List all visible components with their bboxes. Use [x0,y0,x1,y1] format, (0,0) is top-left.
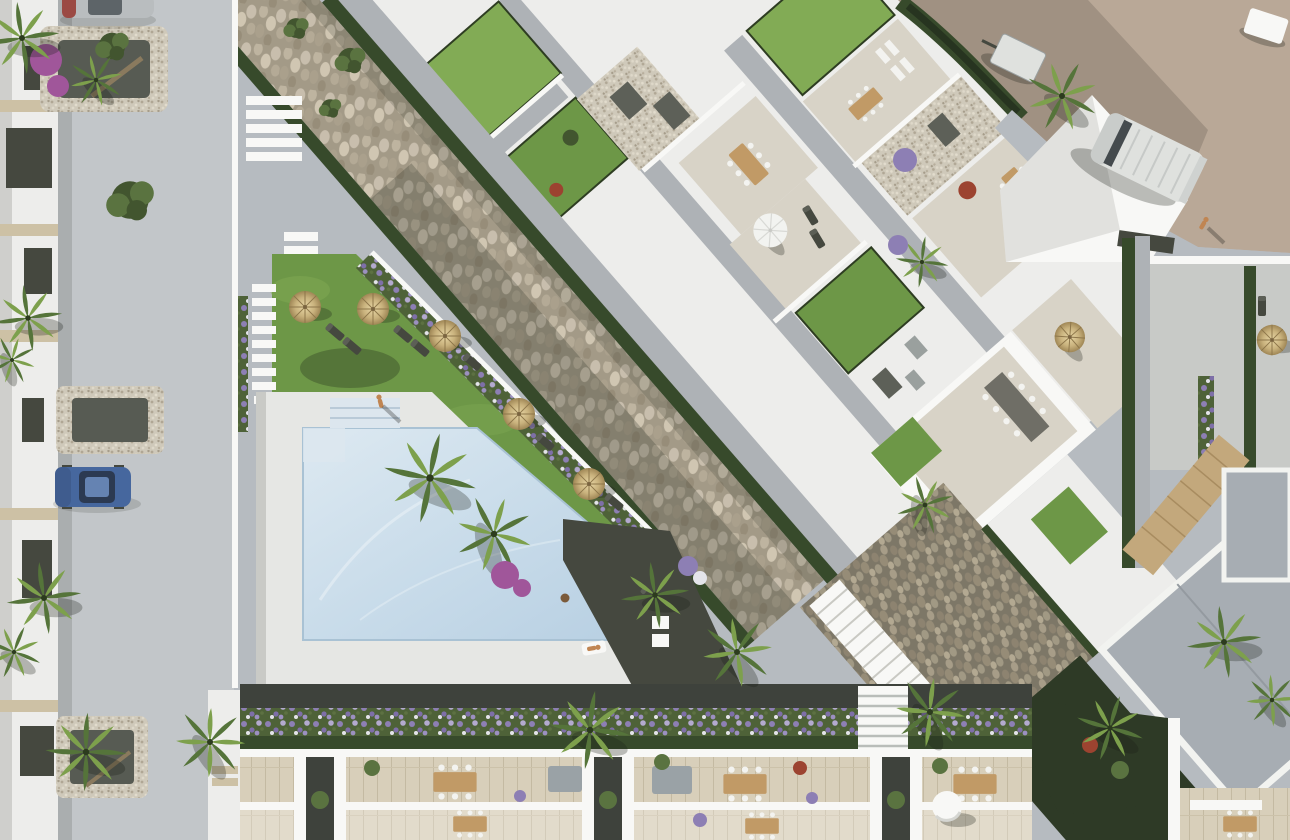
aerial-render [0,0,1290,840]
swimmer [561,594,570,603]
patio-table [453,810,487,837]
unit-divider [870,757,922,840]
garage-opening [6,128,52,188]
flower-cluster [678,556,698,576]
pool-shallow-corner [303,428,345,462]
left-facade-row [0,0,58,840]
planter-flowers [888,235,908,255]
flower-pot [514,790,526,802]
boundary-wall [232,0,238,688]
window [22,540,52,598]
potted-plant [932,758,948,774]
flower-pot [693,813,707,827]
silver-car [60,0,156,29]
potted-plant [364,760,380,776]
sun-lounger [1258,296,1266,316]
scene-canvas [0,0,1290,840]
side-path [1135,236,1150,568]
flower-pot [806,792,818,804]
outdoor-shower [652,634,669,647]
planter-flowers [893,148,917,172]
window [22,398,44,442]
unit-divider [294,757,346,840]
retaining-wall [240,684,1032,708]
window [24,248,52,294]
patio-table [745,812,779,839]
band-staircase [858,686,908,754]
potted-plant [654,754,670,770]
left-street-zone [0,0,240,840]
unit-divider [582,757,634,840]
dining-set [433,764,476,799]
gravel-garden-2 [56,386,164,454]
hedgerow [240,736,1032,749]
corner-sofa [652,766,692,794]
dining-set [953,766,996,801]
red-plant [793,761,807,775]
blue-car [53,465,141,513]
hedgerow [1244,266,1256,470]
outdoor-shower [652,616,669,629]
patio-table [1223,810,1257,837]
corner-sofa [548,766,582,792]
gray-roof-building [1224,470,1290,580]
end-terrace [1180,788,1290,840]
hedgerow [1122,238,1135,568]
dining-set [723,766,766,801]
